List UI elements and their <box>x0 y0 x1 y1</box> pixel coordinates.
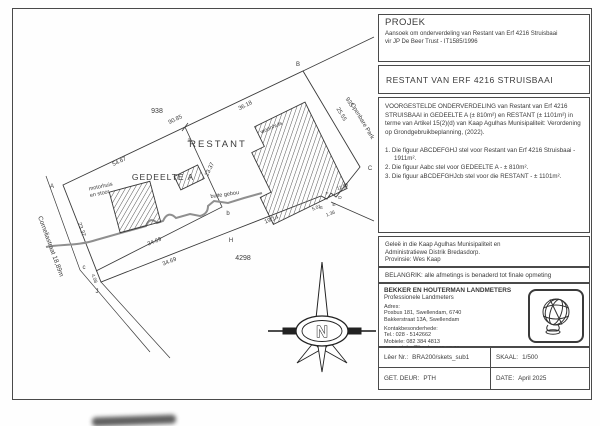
location-line2: Administratiewe Distrik Bredasdorp. <box>385 250 583 258</box>
svg-text:19.14: 19.14 <box>264 214 280 225</box>
drawn-by-value: PTH <box>423 375 436 382</box>
street-name-label: Corneliastraat 18,89m <box>36 215 64 277</box>
erf-4298-label: 4298 <box>235 255 251 262</box>
north-arrow: N <box>268 262 376 372</box>
drawing-title-box: RESTANT VAN ERF 4216 STRUISBAAI <box>378 65 590 94</box>
svg-text:34.69: 34.69 <box>147 237 163 248</box>
figure-note-1: 1. Die figuur ABCDEFGHJ stel voor Restan… <box>385 147 583 164</box>
figure-note-3: 3. Die figuur aBCDEFGHJcb stel voor die … <box>385 173 583 182</box>
building-woonhuis <box>231 102 347 224</box>
file-number-value: BRA200/skets_sub1 <box>412 354 469 361</box>
proposal-text: VOORGESTELDE ONDERVERDELING van Restant … <box>385 103 583 138</box>
scale-label: SKAAL: <box>496 354 518 361</box>
svg-text:c: c <box>83 265 86 271</box>
surveyor-box: BEKKER EN HOUTERMAN LANDMETERS Professio… <box>378 283 590 347</box>
scale-value: 1/500 <box>522 354 538 361</box>
drawn-by-cell: GET. DEUR: PTH <box>378 367 491 390</box>
project-heading: PROJEK <box>385 17 583 28</box>
openbare-park-label: Openbare Park <box>349 102 376 141</box>
svg-text:23.37: 23.37 <box>204 162 216 178</box>
date-label: DATE: <box>496 375 514 382</box>
date-value: April 2025 <box>518 375 546 382</box>
project-box: PROJEK Aansoek om onderverdeling van Res… <box>378 14 590 62</box>
scan-artifact <box>92 415 176 426</box>
erf-938-label: 938 <box>151 108 163 115</box>
drawn-by-label: GET. DEUR: <box>384 375 419 382</box>
parcel-label-gedeelte-a: GEDEELTE A <box>132 172 194 182</box>
drawing-title: RESTANT VAN ERF 4216 STRUISBAAI <box>386 75 553 85</box>
building-motorhuis <box>109 181 160 232</box>
svg-text:b: b <box>226 211 230 217</box>
north-letter: N <box>316 324 328 341</box>
scale-cell: SKAAL: 1/500 <box>490 347 590 368</box>
svg-text:54.67: 54.67 <box>112 156 128 168</box>
svg-text:90.85: 90.85 <box>168 114 184 126</box>
svg-text:A: A <box>50 184 54 190</box>
svg-text:J: J <box>96 289 99 295</box>
project-description-line2: vir JP De Beer Trust - IT1585/1996 <box>385 38 583 46</box>
globe-logo-icon <box>534 295 578 337</box>
svg-text:G: G <box>319 205 323 211</box>
important-note-box: BELANGRIK: alle afmetings is benaderd to… <box>378 267 590 283</box>
location-line1: Geleë in die Kaap Agulhas Munisipaliteit… <box>385 242 583 250</box>
svg-text:E: E <box>332 202 335 208</box>
svg-text:D: D <box>338 195 342 201</box>
date-cell: DATE: April 2025 <box>490 367 590 390</box>
svg-text:36.18: 36.18 <box>238 100 254 112</box>
svg-text:25.55: 25.55 <box>335 107 348 123</box>
location-line3: Provinsie: Wes Kaap <box>385 257 583 265</box>
svg-text:C: C <box>368 166 373 172</box>
svg-text:34.69: 34.69 <box>162 257 178 268</box>
project-description-line1: Aansoek om onderverdeling van Restant va… <box>385 30 583 38</box>
surveyor-logo-frame <box>528 289 584 343</box>
figure-note-2: 2. Die figuur Aabc stel voor GEDEELTE A … <box>385 164 583 173</box>
svg-text:H: H <box>229 238 233 244</box>
file-number-label: Lêer Nr.: <box>384 354 408 361</box>
important-note: BELANGRIK: alle afmetings is benaderd to… <box>385 272 551 279</box>
svg-text:23.37: 23.37 <box>76 222 86 238</box>
svg-text:B: B <box>296 62 300 68</box>
svg-text:F: F <box>326 191 329 197</box>
parcel-label-restant: RESTANT <box>189 139 247 150</box>
svg-text:1.36: 1.36 <box>325 209 336 218</box>
proposal-box: VOORGESTELDE ONDERVERDELING van Restant … <box>378 97 590 233</box>
file-number-cell: Lêer Nr.: BRA200/skets_sub1 <box>378 347 491 368</box>
location-box: Geleë in die Kaap Agulhas Munisipaliteit… <box>378 236 590 267</box>
